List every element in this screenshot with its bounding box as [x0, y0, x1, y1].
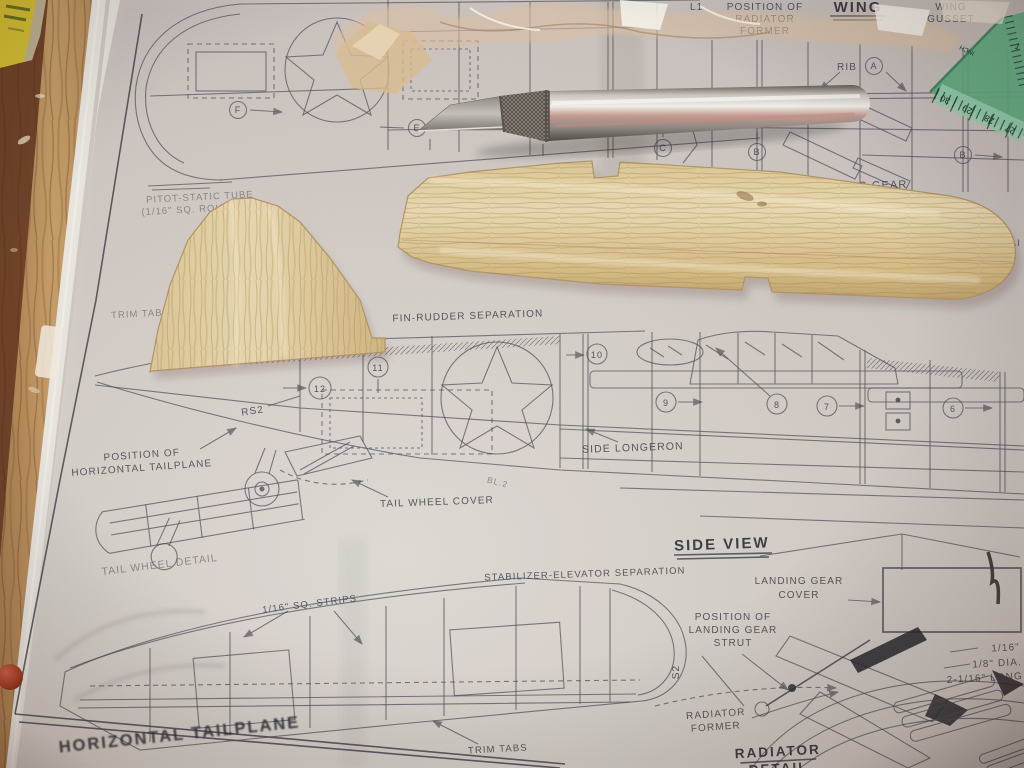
- vignette-overlay: [0, 0, 1024, 768]
- photo-model-airplane-plan: F E D C B B A 12 11 10 9 8 7 6 L1 POSITI…: [0, 0, 1024, 768]
